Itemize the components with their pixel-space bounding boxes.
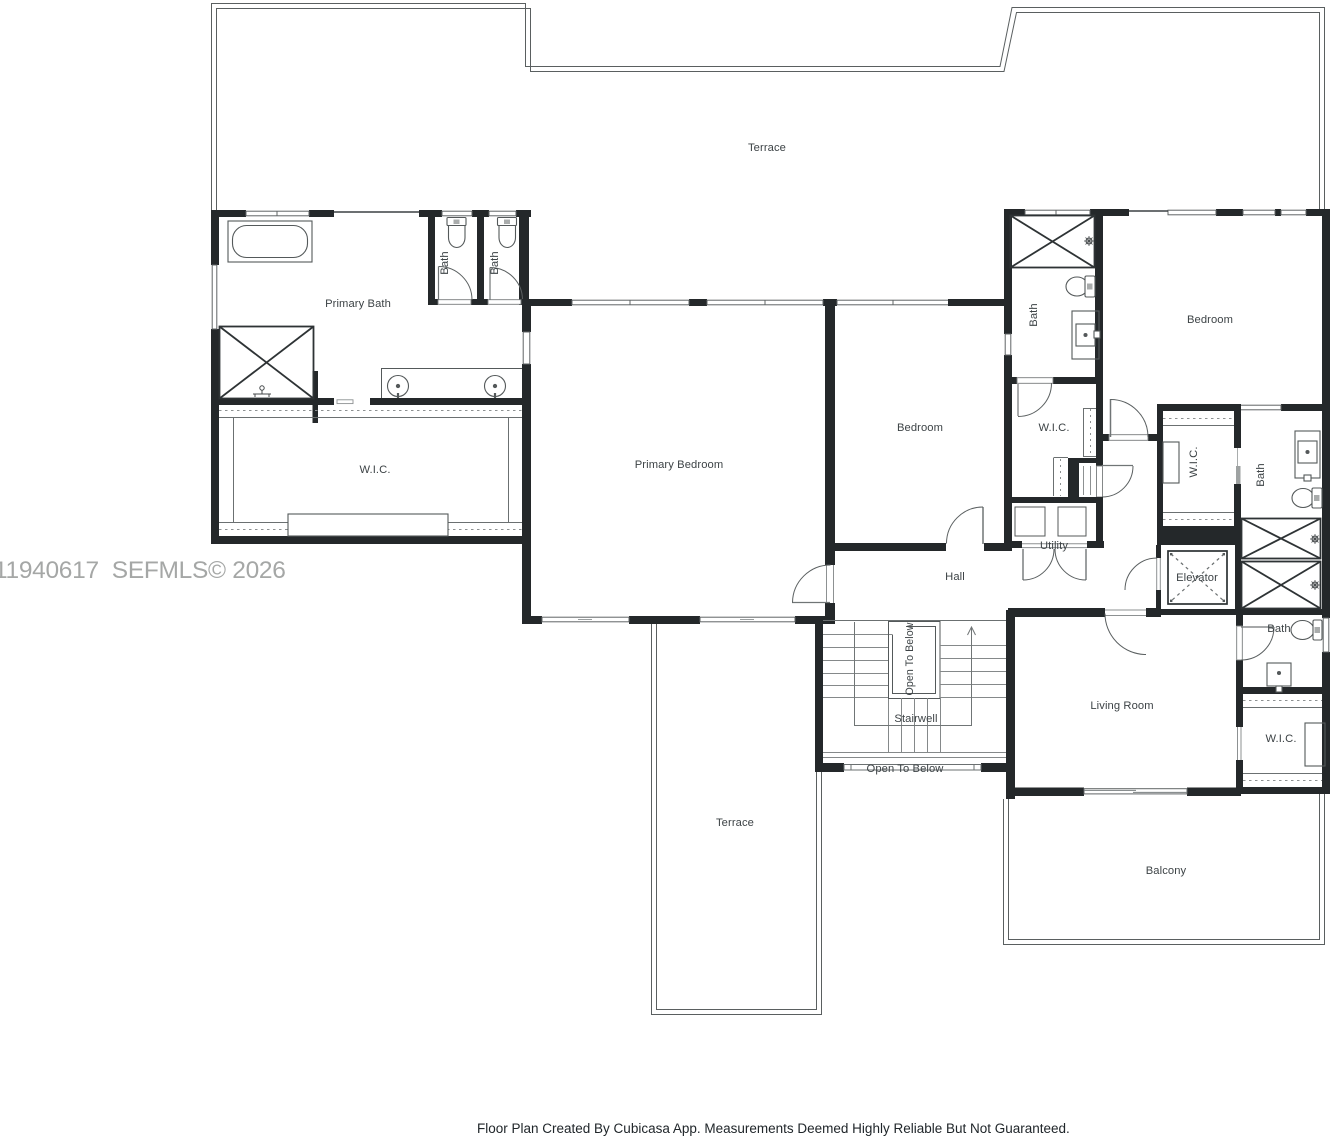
svg-text:Utility: Utility [1040, 540, 1068, 552]
svg-text:W.I.C.: W.I.C. [359, 464, 390, 476]
svg-text:Bath: Bath [439, 251, 451, 274]
svg-text:Hall: Hall [945, 571, 965, 583]
svg-text:Terrace: Terrace [748, 142, 786, 154]
svg-text:Stairwell: Stairwell [894, 713, 937, 725]
svg-text:Primary Bath: Primary Bath [325, 298, 391, 310]
svg-text:Floor Plan Created By Cubicasa: Floor Plan Created By Cubicasa App. Meas… [477, 1121, 1070, 1136]
svg-text:Living Room: Living Room [1090, 700, 1153, 712]
svg-text:Bedroom: Bedroom [897, 422, 943, 434]
svg-text:Bath: Bath [1267, 623, 1290, 635]
svg-text:Open To Below: Open To Below [904, 622, 916, 695]
svg-text:Bath: Bath [1028, 303, 1040, 326]
svg-text:Bath: Bath [1255, 463, 1267, 486]
svg-text:W.I.C.: W.I.C. [1038, 422, 1069, 434]
svg-text:Elevator: Elevator [1176, 572, 1218, 584]
svg-text:Bedroom: Bedroom [1187, 314, 1233, 326]
svg-text:Bath: Bath [489, 251, 501, 274]
svg-text:11940617 SEFMLS© 2026: 11940617 SEFMLS© 2026 [0, 557, 286, 584]
svg-text:W.I.C.: W.I.C. [1265, 733, 1296, 745]
svg-text:W.I.C.: W.I.C. [1188, 446, 1200, 477]
svg-text:Balcony: Balcony [1146, 865, 1187, 877]
svg-text:Primary Bedroom: Primary Bedroom [635, 459, 724, 471]
svg-text:Terrace: Terrace [716, 817, 754, 829]
svg-text:Open To Below: Open To Below [867, 763, 945, 775]
